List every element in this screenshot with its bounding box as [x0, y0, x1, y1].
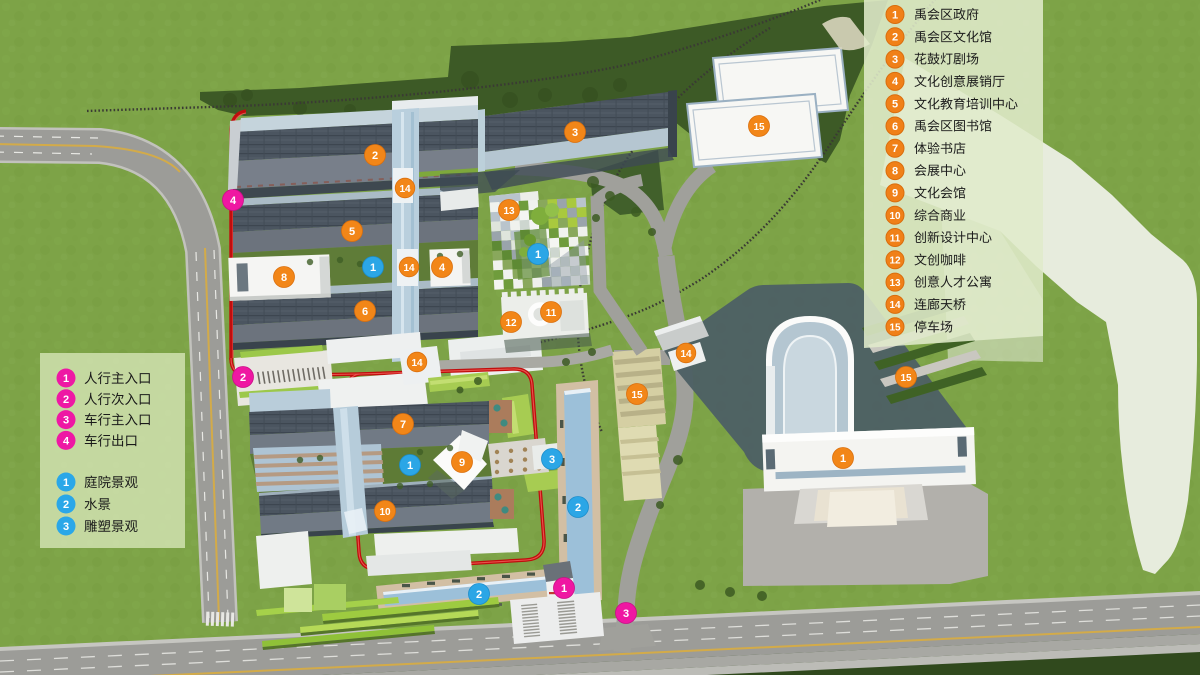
svg-text:1: 1 — [370, 262, 376, 274]
svg-text:2: 2 — [372, 150, 378, 162]
svg-text:综合商业: 综合商业 — [914, 205, 966, 224]
svg-text:6: 6 — [362, 306, 368, 318]
svg-text:6: 6 — [892, 121, 898, 133]
svg-text:文创咖啡: 文创咖啡 — [914, 249, 966, 268]
svg-text:7: 7 — [892, 143, 898, 155]
svg-text:14: 14 — [889, 300, 901, 311]
svg-text:11: 11 — [546, 308, 557, 319]
svg-text:4: 4 — [230, 195, 237, 207]
svg-text:13: 13 — [503, 206, 515, 217]
svg-text:人行次入口: 人行次入口 — [84, 388, 152, 408]
svg-text:13: 13 — [889, 278, 901, 289]
svg-text:2: 2 — [63, 394, 69, 406]
svg-text:连廊天桥: 连廊天桥 — [914, 294, 966, 313]
svg-text:4: 4 — [63, 435, 70, 447]
svg-text:禹会区政府: 禹会区政府 — [914, 4, 979, 23]
svg-text:2: 2 — [240, 372, 246, 384]
svg-text:3: 3 — [623, 608, 629, 620]
svg-text:7: 7 — [400, 419, 406, 431]
svg-text:2: 2 — [63, 499, 69, 511]
svg-text:停车场: 停车场 — [914, 316, 953, 335]
svg-text:15: 15 — [900, 373, 912, 384]
svg-text:1: 1 — [892, 9, 898, 21]
svg-text:人行主入口: 人行主入口 — [84, 367, 152, 387]
svg-text:5: 5 — [349, 226, 355, 238]
svg-text:15: 15 — [753, 122, 765, 133]
svg-text:1: 1 — [63, 373, 69, 385]
svg-text:8: 8 — [281, 272, 287, 284]
svg-text:9: 9 — [892, 188, 898, 200]
svg-text:1: 1 — [407, 460, 413, 472]
svg-text:11: 11 — [890, 233, 901, 244]
svg-text:15: 15 — [631, 390, 643, 401]
svg-text:4: 4 — [439, 262, 446, 274]
svg-text:8: 8 — [892, 165, 898, 177]
svg-text:14: 14 — [680, 349, 692, 360]
svg-text:3: 3 — [63, 415, 69, 427]
svg-text:1: 1 — [63, 477, 69, 489]
svg-text:10: 10 — [889, 211, 901, 222]
svg-text:水景: 水景 — [84, 493, 111, 513]
svg-text:14: 14 — [399, 184, 411, 195]
svg-text:会展中心: 会展中心 — [914, 160, 966, 179]
svg-text:1: 1 — [535, 249, 541, 261]
svg-text:3: 3 — [63, 521, 69, 533]
svg-text:3: 3 — [572, 127, 578, 139]
svg-text:车行出口: 车行出口 — [84, 429, 138, 449]
svg-text:4: 4 — [892, 76, 899, 88]
svg-text:5: 5 — [892, 99, 898, 111]
svg-text:创新设计中心: 创新设计中心 — [914, 227, 992, 246]
svg-text:15: 15 — [889, 323, 901, 334]
svg-text:花鼓灯剧场: 花鼓灯剧场 — [914, 49, 979, 68]
svg-text:10: 10 — [379, 507, 391, 518]
svg-text:12: 12 — [505, 318, 517, 329]
svg-text:文化教育培训中心: 文化教育培训中心 — [914, 93, 1018, 112]
svg-text:文化创意展销厅: 文化创意展销厅 — [914, 71, 1005, 90]
svg-text:12: 12 — [889, 256, 901, 267]
svg-text:14: 14 — [403, 263, 415, 274]
svg-text:1: 1 — [840, 453, 846, 465]
svg-text:1: 1 — [561, 583, 567, 595]
svg-text:创意人才公寓: 创意人才公寓 — [914, 272, 992, 291]
svg-text:禹会区文化馆: 禹会区文化馆 — [914, 26, 992, 45]
svg-text:2: 2 — [476, 589, 482, 601]
svg-text:9: 9 — [459, 457, 465, 469]
svg-text:3: 3 — [549, 454, 555, 466]
svg-text:2: 2 — [575, 502, 581, 514]
svg-text:2: 2 — [892, 32, 898, 44]
svg-text:雕塑景观: 雕塑景观 — [84, 515, 138, 535]
svg-text:车行主入口: 车行主入口 — [84, 409, 152, 429]
svg-text:文化会馆: 文化会馆 — [914, 183, 966, 202]
svg-text:14: 14 — [411, 358, 423, 369]
svg-text:禹会区图书馆: 禹会区图书馆 — [914, 116, 992, 135]
svg-text:庭院景观: 庭院景观 — [84, 471, 138, 491]
svg-text:3: 3 — [892, 54, 898, 66]
svg-text:体验书店: 体验书店 — [914, 138, 966, 157]
